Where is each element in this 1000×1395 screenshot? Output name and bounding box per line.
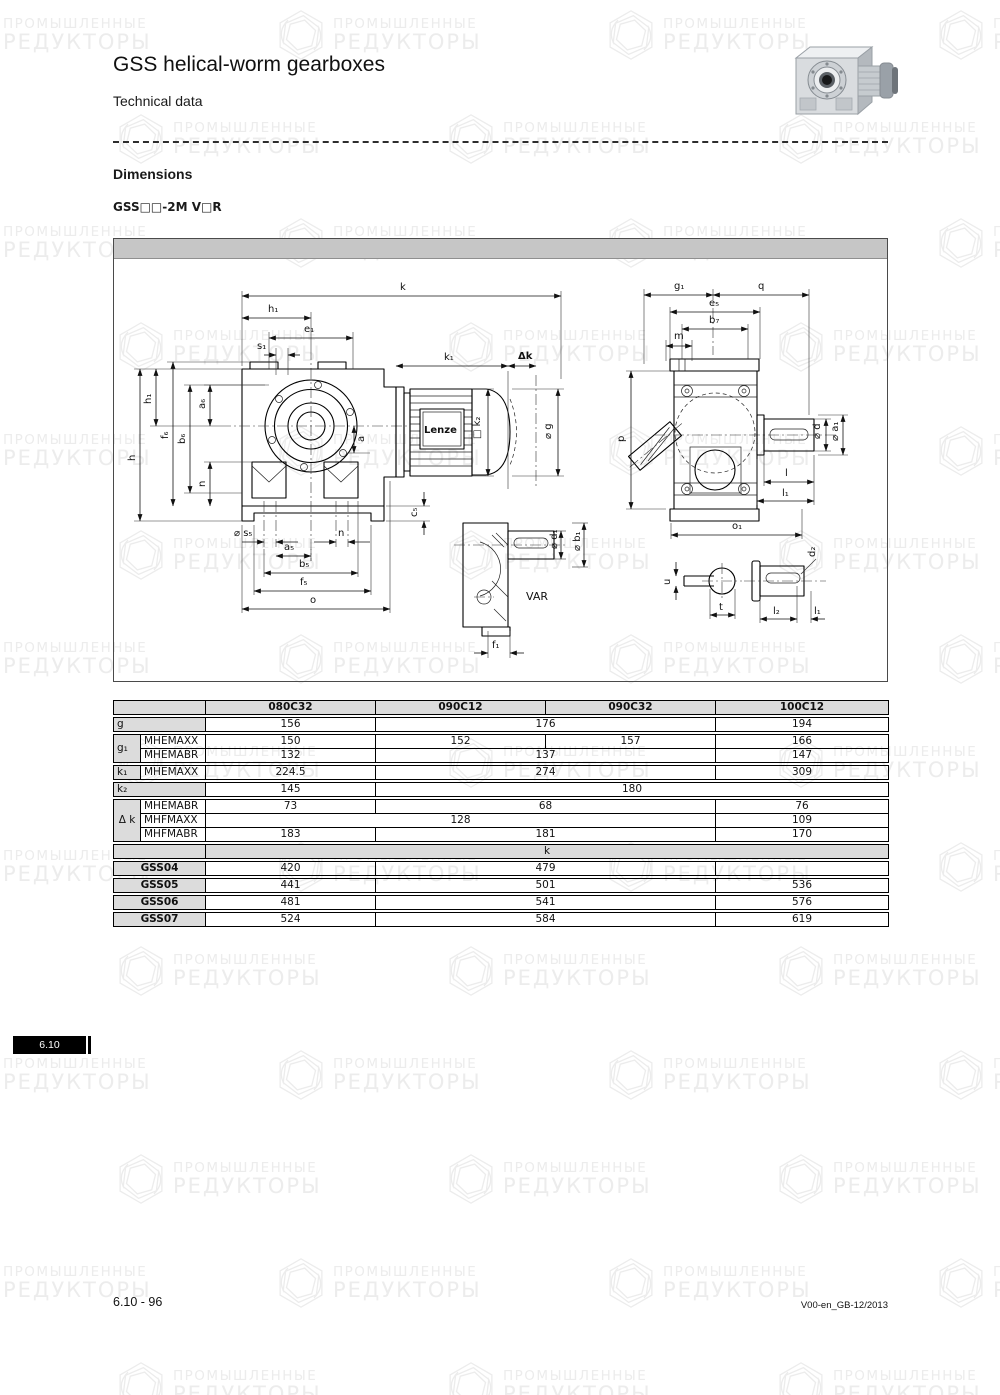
table-cell: 109 [716,814,889,828]
dim-label-h1-left: h₁ [143,394,154,404]
dimension-table-group: GSS06481541576 [113,895,889,910]
table-cell: 150 [206,735,376,749]
table-cell: k [206,845,889,859]
table-cell: 180 [376,783,889,797]
chapter-tab-notch [88,1036,91,1054]
dimension-table-group: g156176194 [113,717,889,732]
dimension-table-group: GSS04420479 [113,861,889,876]
table-cell: 541 [376,896,716,910]
table-cell: g₁ [114,735,141,763]
dim-label-d1: ⌀ d₁ [549,529,560,549]
dimension-drawing: Lenze k h₁ e₁ s [114,239,887,681]
table-cell [716,862,889,876]
dimension-table-group: g₁MHEMAXX150152157166MHEMABR132137147 [113,734,889,763]
table-cell: 147 [716,749,889,763]
table-cell: 224.5 [206,766,376,780]
dim-label-delta-k: Δk [518,351,533,362]
dim-label-e5: e₅ [709,298,719,309]
table-cell: MHEMABR [141,800,206,814]
dim-label-b5: b₅ [299,559,309,570]
dim-label-b6: b₆ [177,434,188,444]
table-cell: 441 [206,879,376,893]
model-designation: GSS□□-2M V□R [113,200,222,214]
table-cell: 420 [206,862,376,876]
dimension-table-group: GSS07524584619 [113,912,889,927]
dim-label-h1: h₁ [268,304,278,315]
page-title: GSS helical-worm gearboxes [113,53,385,77]
table-cell: k₁ [114,766,141,780]
table-cell: 524 [206,913,376,927]
dim-label-g1: g₁ [674,281,684,292]
table-cell: 619 [716,913,889,927]
dim-label-a1: ⌀ a₁ [830,422,841,441]
dim-label-l1: l₁ [782,488,789,499]
dim-label-t: t [719,602,723,613]
table-cell: 090C32 [546,701,716,715]
dim-label-o: o [310,595,316,606]
dim-label-n-bottom: n [338,528,344,539]
section-heading: Dimensions [113,166,192,182]
dim-label-s1: s₁ [257,341,266,352]
dim-label-d: ⌀ d [812,423,823,439]
table-cell: GSS05 [114,879,206,893]
table-cell: 501 [376,879,716,893]
table-cell: Δ k [114,800,141,842]
dim-label-d2: d₂ [807,547,818,557]
table-cell: 479 [376,862,716,876]
table-cell: MHFMAXX [141,814,206,828]
table-cell: 576 [716,896,889,910]
dimension-table-group: Δ kMHEMABR736876MHFMAXX128109MHFMABR1831… [113,799,889,842]
table-cell: GSS07 [114,913,206,927]
dim-label-p: p [616,436,627,442]
table-cell: g [114,718,206,732]
table-cell: MHFMABR [141,828,206,842]
dimension-table-group: 080C32090C12090C32100C12 [113,700,889,715]
dim-label-f6: f₆ [160,431,171,439]
footer-version: V00-en_GB-12/2013 [113,1300,888,1311]
table-cell: 156 [206,718,376,732]
page-subtitle: Technical data [113,93,203,109]
dim-label-c5: c₅ [409,507,420,517]
table-cell: 137 [376,749,716,763]
dimensions-table: 080C32090C12090C32100C12g156176194g₁MHEM… [113,700,888,929]
dim-label-n-left: n [197,481,208,487]
table-cell: 584 [376,913,716,927]
var-label: VAR [526,590,548,603]
table-cell: 090C12 [376,701,546,715]
dim-label-q: q [758,281,764,292]
table-cell: 536 [716,879,889,893]
table-cell: 170 [716,828,889,842]
table-cell: 080C32 [206,701,376,715]
table-cell: 481 [206,896,376,910]
table-cell: GSS06 [114,896,206,910]
table-cell: 73 [206,800,376,814]
table-cell: 100C12 [716,701,889,715]
product-photo [778,38,900,128]
dimension-table-group: k₂145180 [113,782,889,797]
dim-label-k1: k₁ [444,352,454,363]
table-cell: 132 [206,749,376,763]
dashed-separator [113,141,888,143]
dim-label-a: a [356,436,367,442]
table-cell: k₂ [114,783,206,797]
table-cell: 183 [206,828,376,842]
table-cell: 128 [206,814,716,828]
table-cell: MHEMAXX [141,766,206,780]
dimension-table-group: k [113,844,889,859]
dim-label-a6: a₆ [197,399,208,409]
dim-label-l1-shaft: l₁ [814,606,821,617]
dimension-table-group: k₁MHEMAXX224.5274309 [113,765,889,780]
table-cell [114,845,206,859]
dim-label-e1: e₁ [304,324,314,335]
dim-label-k2: □ k₂ [472,417,483,439]
table-cell: 274 [376,766,716,780]
table-cell [114,701,206,715]
dim-label-k: k [400,282,406,293]
table-cell: 145 [206,783,376,797]
dim-label-m: m [674,331,684,342]
table-cell: GSS04 [114,862,206,876]
table-cell: 166 [716,735,889,749]
dimension-table-group: GSS05441501536 [113,878,889,893]
dim-label-o1: o₁ [732,521,742,532]
table-cell: MHEMAXX [141,735,206,749]
dim-label-g: ⌀ g [543,423,554,439]
table-cell: 181 [376,828,716,842]
table-cell: 194 [716,718,889,732]
table-cell: MHEMABR [141,749,206,763]
dim-label-f1: f₁ [492,640,500,651]
dim-label-b1: ⌀ b₁ [572,531,583,551]
chapter-tab: 6.10 [13,1036,86,1054]
brand-label: Lenze [424,425,457,436]
catalog-page: ПРОМЫШЛЕННЫЕРЕДУКТОРЫПРОМЫШЛЕННЫЕРЕДУКТО… [0,0,1000,1395]
dim-label-s5: ⌀ s₅ [234,528,252,539]
dim-label-a5: a₅ [284,542,294,553]
table-cell: 309 [716,766,889,780]
dim-label-f5: f₅ [300,577,308,588]
dim-label-h: h [127,455,138,461]
table-cell: 176 [376,718,716,732]
table-cell: 157 [546,735,716,749]
table-cell: 68 [376,800,716,814]
table-cell: 76 [716,800,889,814]
dim-label-b7: b₇ [709,315,719,326]
dim-label-l: l [785,468,788,479]
dim-label-u: u [662,579,673,585]
dimension-drawing-frame: Lenze k h₁ e₁ s [113,238,888,682]
dim-label-l2: l₂ [773,606,780,617]
table-cell: 152 [376,735,546,749]
